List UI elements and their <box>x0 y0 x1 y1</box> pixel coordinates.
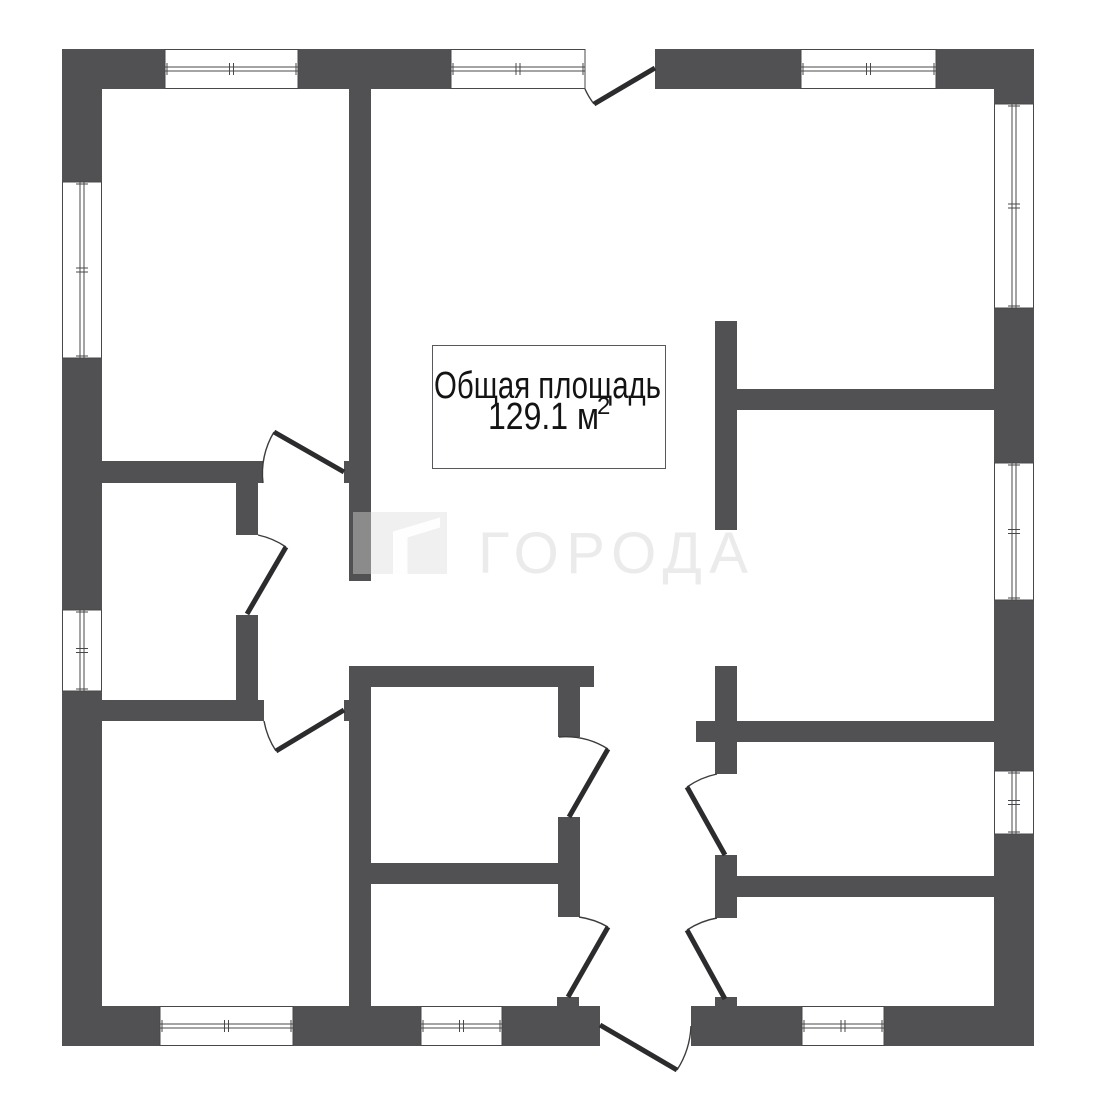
svg-text:ГОРОДА: ГОРОДА <box>478 521 755 586</box>
svg-text:129.1 м: 129.1 м <box>488 396 599 438</box>
svg-text:2: 2 <box>597 393 610 420</box>
